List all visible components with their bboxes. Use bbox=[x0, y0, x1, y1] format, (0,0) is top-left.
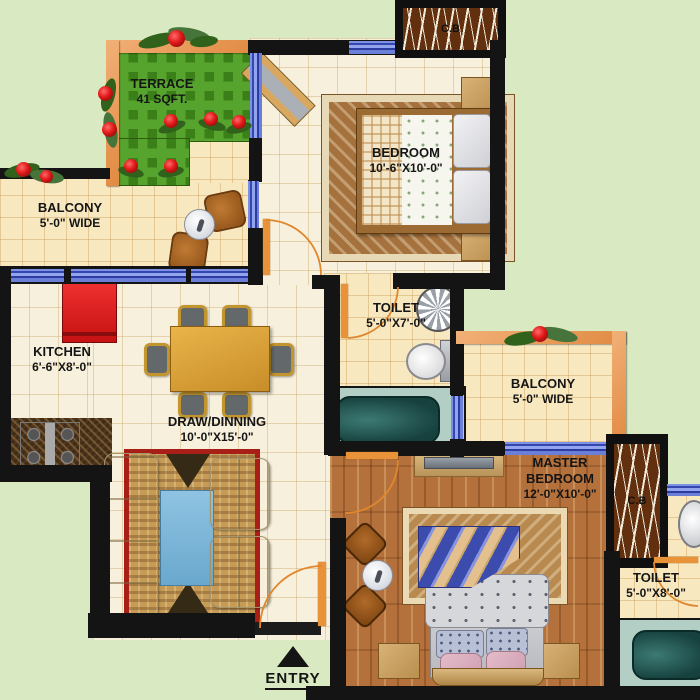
dining-chair bbox=[144, 343, 170, 376]
toilet-master-size: 5'-0"X8'-0" bbox=[612, 586, 700, 601]
master-wall-left bbox=[330, 518, 346, 696]
window bbox=[504, 442, 616, 455]
sofa-long bbox=[104, 453, 158, 625]
toilet-attached-size: 5'-0"X7'-0" bbox=[340, 316, 452, 331]
dining-chair bbox=[268, 343, 294, 376]
master-stool bbox=[378, 643, 420, 679]
toilet-master-label: TOILET 5'-0"X8'-0" bbox=[612, 570, 700, 600]
master-door bbox=[346, 452, 398, 459]
window bbox=[248, 180, 259, 232]
toilet-master-bathtub bbox=[632, 630, 700, 680]
toilet-master-name: TOILET bbox=[612, 570, 700, 586]
entry-door bbox=[318, 562, 326, 626]
master-stool bbox=[540, 643, 580, 679]
flower-decoration bbox=[156, 158, 192, 188]
window bbox=[666, 484, 700, 496]
sofa-small bbox=[210, 458, 270, 530]
blue-rug bbox=[160, 490, 214, 586]
tv-screen bbox=[424, 457, 494, 469]
wc-bowl bbox=[406, 343, 446, 380]
bedroom-size: 10'-6"X10'-0" bbox=[348, 161, 464, 176]
bedroom-name: BEDROOM bbox=[348, 145, 464, 161]
master-headboard bbox=[432, 668, 544, 686]
window bbox=[451, 395, 463, 441]
kitchen-label: KITCHEN 6'-6"X8'-0" bbox=[12, 344, 112, 374]
stove bbox=[20, 422, 80, 470]
terrace-label: TERRACE 41 SQFT. bbox=[112, 76, 212, 106]
entry-arrow-icon bbox=[277, 646, 309, 667]
balcony-right-wall-right bbox=[612, 331, 626, 445]
toilet-attached-name: TOILET bbox=[340, 300, 452, 316]
flower-decoration bbox=[158, 112, 198, 142]
master-wall-bottom bbox=[306, 686, 700, 700]
master-bedroom-label: MASTER BEDROOM 12'-0"X10'-0" bbox=[506, 455, 614, 501]
balcony-right-name: BALCONY bbox=[490, 376, 596, 392]
cupboard-master-label: C.B bbox=[606, 434, 668, 568]
flower-decoration bbox=[504, 320, 584, 356]
bedroom-label: BEDROOM 10'-6"X10'-0" bbox=[348, 145, 464, 175]
bedroom-door bbox=[263, 219, 270, 275]
balcony-right-label: BALCONY 5'-0" WIDE bbox=[490, 376, 596, 406]
flower-decoration bbox=[118, 158, 154, 188]
draw-wall-left bbox=[90, 478, 110, 620]
flower-decoration bbox=[138, 24, 218, 58]
entry-marker: ENTRY bbox=[258, 646, 328, 690]
kitchen-size: 6'-6"X8'-0" bbox=[12, 360, 112, 375]
entry-threshold bbox=[255, 622, 321, 635]
toilet-attached-wall-top bbox=[393, 273, 505, 289]
toilet-attached-label: TOILET 5'-0"X7'-0" bbox=[340, 300, 452, 330]
master-bedroom-name-2: BEDROOM bbox=[506, 471, 614, 487]
master-table bbox=[362, 560, 393, 591]
kitchen-name: KITCHEN bbox=[12, 344, 112, 360]
flower-decoration bbox=[226, 114, 262, 144]
bedroom-wall-right bbox=[490, 40, 505, 290]
toilet-attached-wall-left bbox=[324, 275, 340, 455]
window bbox=[8, 269, 65, 282]
window bbox=[348, 41, 402, 54]
balcony-right-size: 5'-0" WIDE bbox=[490, 392, 596, 407]
bed-pillow bbox=[453, 170, 491, 224]
balcony-left-name: BALCONY bbox=[10, 200, 130, 216]
window bbox=[70, 269, 187, 282]
cupboard-master: C.B bbox=[606, 434, 668, 568]
draw-dining-label: DRAW/DINNING 10'-0"X15'-0" bbox=[152, 414, 282, 444]
terrace-size: 41 SQFT. bbox=[112, 92, 212, 107]
sofa-small bbox=[210, 536, 270, 608]
master-bedroom-name-1: MASTER bbox=[506, 455, 614, 471]
draw-dining-name: DRAW/DINNING bbox=[152, 414, 282, 430]
balcony-left-label: BALCONY 5'-0" WIDE bbox=[10, 200, 130, 230]
window bbox=[190, 269, 252, 282]
bedroom-wall-left-lower bbox=[248, 228, 263, 285]
draw-wall-bottom bbox=[88, 613, 255, 638]
balcony-left-size: 5'-0" WIDE bbox=[10, 216, 130, 231]
balcony-table bbox=[184, 209, 215, 240]
terrace-name: TERRACE bbox=[112, 76, 212, 92]
floor-plan: C.B C.B bbox=[0, 0, 700, 700]
toilet-master-door bbox=[654, 557, 698, 563]
kitchen-wall-left bbox=[0, 266, 11, 482]
master-bedroom-size: 12'-0"X10'-0" bbox=[506, 487, 614, 502]
draw-dining-size: 10'-0"X15'-0" bbox=[152, 430, 282, 445]
dining-table bbox=[170, 326, 270, 392]
refrigerator bbox=[62, 281, 117, 343]
bedroom-wall-left bbox=[249, 138, 262, 182]
entry-label: ENTRY bbox=[265, 670, 320, 690]
toilet-attached-bathtub bbox=[336, 396, 440, 444]
flower-decoration bbox=[4, 154, 74, 194]
